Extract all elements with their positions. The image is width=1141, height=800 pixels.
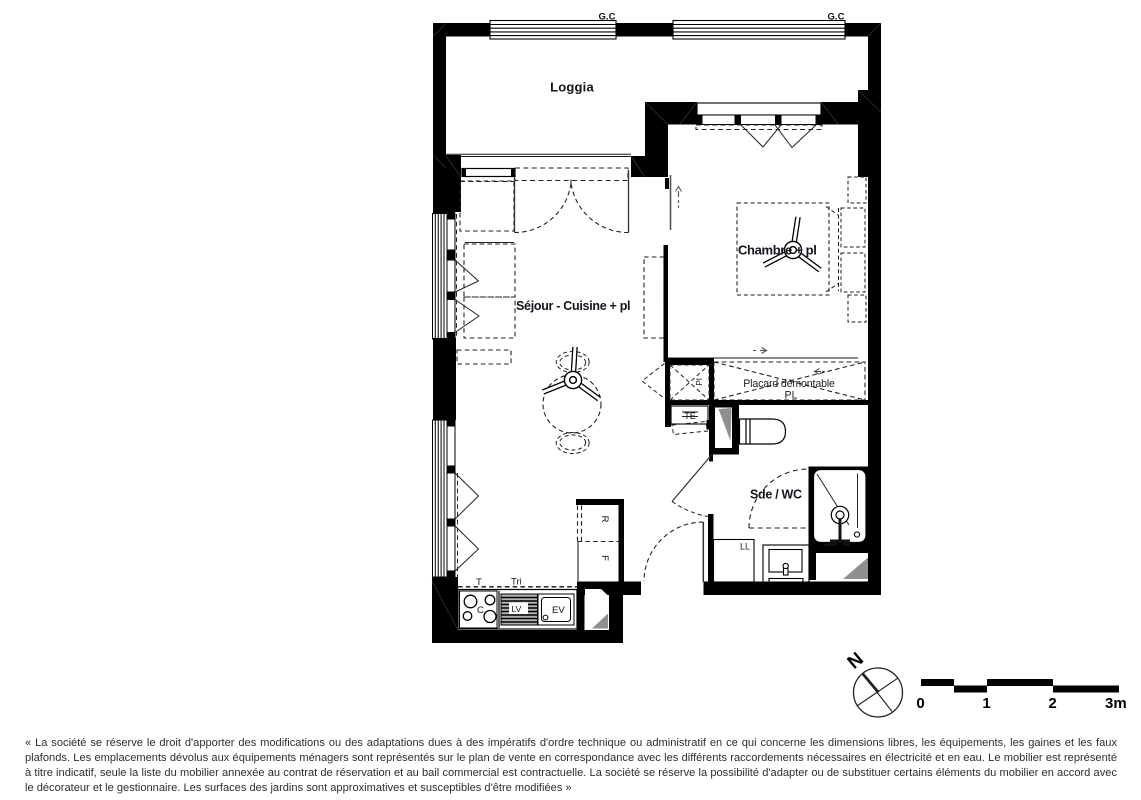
svg-text:LV: LV bbox=[512, 604, 522, 614]
svg-text:N: N bbox=[844, 649, 868, 674]
svg-text:Sde / WC: Sde / WC bbox=[750, 488, 802, 502]
svg-text:0: 0 bbox=[916, 695, 924, 712]
svg-text:G.C: G.C bbox=[599, 12, 616, 23]
svg-text:T: T bbox=[476, 577, 482, 588]
svg-text:EV: EV bbox=[552, 605, 565, 616]
svg-text:Tri: Tri bbox=[511, 577, 522, 588]
svg-text:G.C: G.C bbox=[828, 12, 845, 23]
svg-text:Chambre + pl: Chambre + pl bbox=[738, 243, 817, 258]
svg-text:F: F bbox=[599, 555, 610, 561]
svg-text:LL: LL bbox=[740, 542, 750, 552]
svg-text:TE: TE bbox=[684, 411, 696, 421]
svg-text:Séjour - Cuisine + pl: Séjour - Cuisine + pl bbox=[516, 299, 630, 313]
svg-text:Pl: Pl bbox=[694, 378, 704, 386]
svg-text:R: R bbox=[599, 516, 610, 523]
svg-text:Placard démontable: Placard démontable bbox=[743, 378, 835, 390]
svg-text:PL: PL bbox=[785, 390, 798, 402]
svg-text:1: 1 bbox=[982, 695, 990, 712]
svg-text:C: C bbox=[477, 605, 484, 616]
svg-text:3m: 3m bbox=[1105, 695, 1127, 712]
svg-text:Loggia: Loggia bbox=[550, 80, 594, 95]
svg-text:2: 2 bbox=[1048, 695, 1056, 712]
